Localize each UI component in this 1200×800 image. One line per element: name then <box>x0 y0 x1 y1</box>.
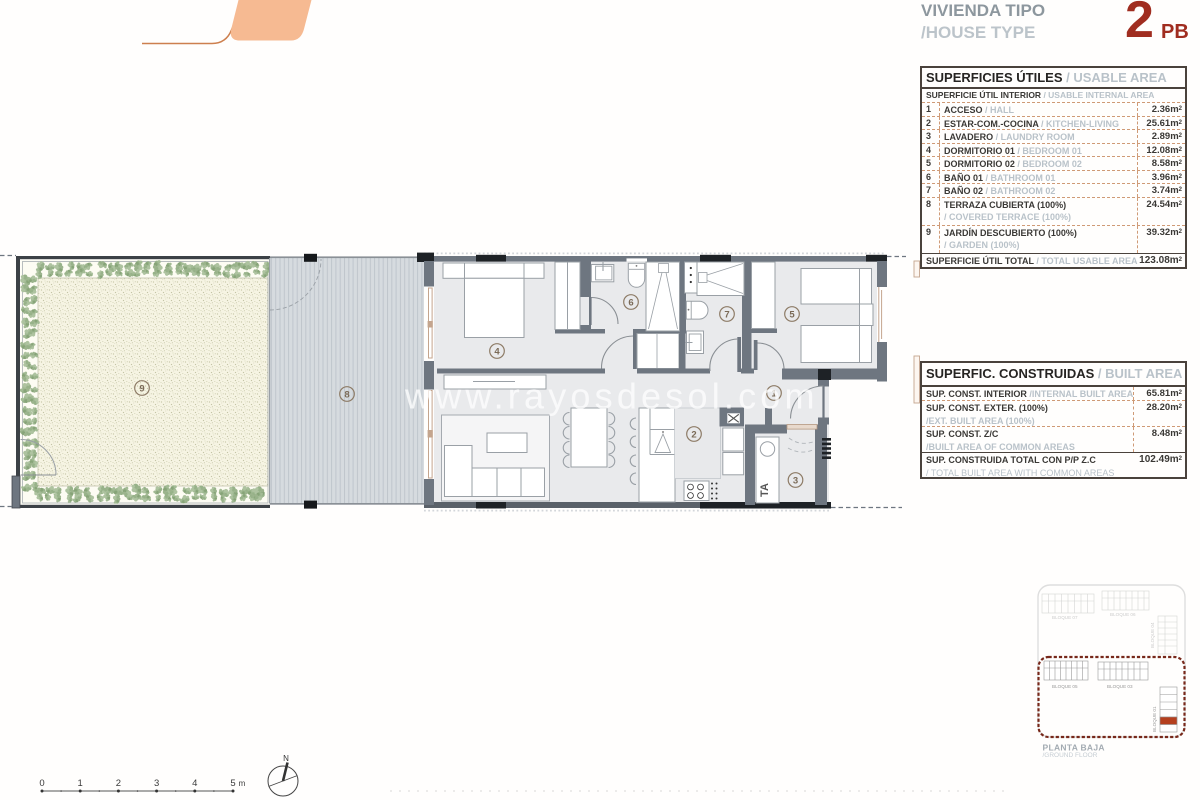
svg-text:TA: TA <box>759 483 771 497</box>
svg-text:3: 3 <box>154 778 159 789</box>
svg-text:www.rayosdesol.com: www.rayosdesol.com <box>404 376 819 417</box>
svg-text:4: 4 <box>192 778 197 789</box>
svg-text:7: 7 <box>724 309 729 320</box>
svg-text:BLOQUE 06: BLOQUE 06 <box>1110 612 1136 617</box>
svg-text:5: 5 <box>230 778 235 789</box>
svg-text:2: 2 <box>116 778 121 789</box>
svg-text:2: 2 <box>691 429 696 440</box>
svg-text:0: 0 <box>39 778 44 789</box>
svg-text:9: 9 <box>139 383 144 394</box>
svg-text:1: 1 <box>78 778 83 789</box>
svg-text:4: 4 <box>494 346 500 357</box>
svg-text:BLOQUE 04: BLOQUE 04 <box>1150 622 1155 648</box>
svg-text:BLOQUE 01: BLOQUE 01 <box>1152 706 1157 732</box>
svg-text:N: N <box>283 754 289 763</box>
svg-text:5: 5 <box>789 309 795 320</box>
svg-text:BLOQUE 07: BLOQUE 07 <box>1052 615 1078 620</box>
svg-text:m: m <box>239 779 246 788</box>
svg-text:6: 6 <box>628 297 633 308</box>
svg-text:3: 3 <box>793 475 798 486</box>
svg-text:BLOQUE 03: BLOQUE 03 <box>1107 684 1133 689</box>
svg-text:8: 8 <box>344 389 349 400</box>
svg-text:/GROUND FLOOR: /GROUND FLOOR <box>1043 752 1098 759</box>
svg-text:PLANTA BAJA: PLANTA BAJA <box>1043 743 1105 753</box>
svg-text:BLOQUE 05: BLOQUE 05 <box>1052 684 1078 689</box>
